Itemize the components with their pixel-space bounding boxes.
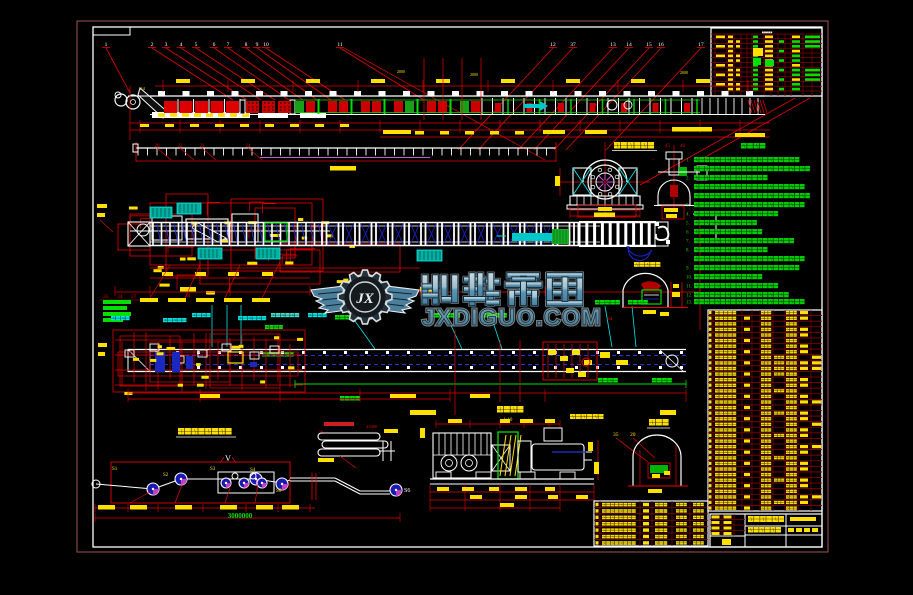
svg-text:6.: 6. bbox=[686, 231, 690, 236]
svg-text:35: 35 bbox=[613, 432, 619, 438]
svg-text:4.: 4. bbox=[686, 213, 690, 218]
svg-text:S2: S2 bbox=[163, 473, 169, 478]
svg-text:S1: S1 bbox=[112, 467, 118, 472]
svg-text:2.: 2. bbox=[686, 177, 690, 182]
svg-text:9.: 9. bbox=[686, 267, 690, 272]
svg-text:20: 20 bbox=[630, 432, 636, 438]
svg-text:2000: 2000 bbox=[680, 70, 688, 75]
svg-text:S6: S6 bbox=[404, 488, 410, 494]
svg-text:34: 34 bbox=[607, 316, 613, 322]
svg-text:2000: 2000 bbox=[470, 72, 478, 77]
svg-text:←: ← bbox=[651, 157, 656, 162]
svg-text:3000000: 3000000 bbox=[228, 512, 253, 520]
svg-text:34: 34 bbox=[185, 293, 191, 299]
svg-text:41000: 41000 bbox=[366, 424, 378, 429]
svg-text:34: 34 bbox=[117, 294, 123, 300]
svg-text:8.: 8. bbox=[686, 249, 690, 254]
svg-text:5.: 5. bbox=[686, 222, 690, 227]
svg-text:114: 114 bbox=[139, 86, 145, 91]
svg-text:46: 46 bbox=[680, 144, 686, 149]
svg-text:35: 35 bbox=[103, 294, 109, 300]
svg-text:S6: S6 bbox=[276, 489, 282, 494]
svg-text:S3: S3 bbox=[210, 467, 216, 472]
svg-text:1.: 1. bbox=[686, 159, 690, 164]
svg-text:3.: 3. bbox=[686, 204, 690, 209]
svg-text:13.: 13. bbox=[686, 301, 692, 306]
svg-text:11.: 11. bbox=[686, 285, 692, 290]
svg-text:S4: S4 bbox=[250, 468, 256, 473]
svg-text:2000: 2000 bbox=[397, 69, 405, 74]
svg-text:JXDIGUO.COM: JXDIGUO.COM bbox=[422, 304, 602, 330]
svg-text:7.: 7. bbox=[686, 240, 690, 245]
svg-text:10.: 10. bbox=[686, 276, 692, 281]
svg-text:45: 45 bbox=[665, 144, 671, 149]
svg-text:JX: JX bbox=[355, 291, 375, 307]
svg-text:27: 27 bbox=[131, 294, 137, 300]
svg-text:12.: 12. bbox=[686, 294, 692, 299]
